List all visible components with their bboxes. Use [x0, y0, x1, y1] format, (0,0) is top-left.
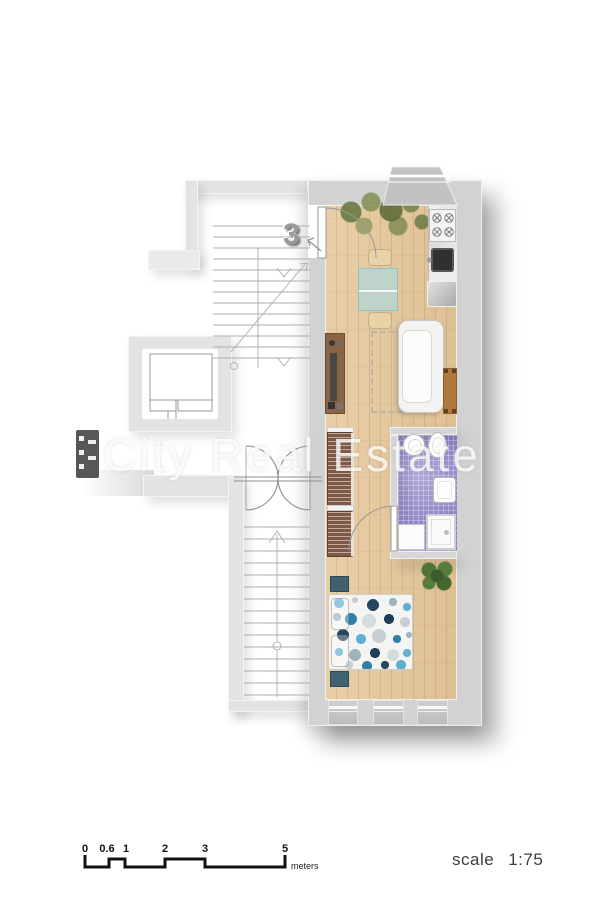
dining-table [358, 268, 398, 311]
lower-stairs [244, 527, 310, 697]
bedroom-plant [417, 556, 457, 596]
console-box [337, 403, 343, 409]
scale-bar-label-5: 5 [282, 843, 288, 855]
kitchen-cabinet [427, 281, 457, 307]
nightstand-top [330, 576, 349, 592]
scale-bar-label-3: 3 [202, 843, 208, 855]
scale-note-ratio: 1:75 [508, 850, 543, 870]
scale-bar-unit: meters [291, 861, 319, 871]
floor-plan-image: 3 City Real Estate 0 0.6 1 2 3 5 meters … [0, 0, 602, 900]
wardrobe-lower [327, 511, 354, 557]
sofa-seat [402, 330, 432, 403]
living-room-plant [336, 192, 428, 238]
lower-stairwell-left-wall [228, 477, 244, 712]
scale-note-label: scale [452, 850, 494, 870]
console-speaker-icon [329, 340, 335, 346]
pillow-bottom [331, 635, 349, 667]
pillow-top [331, 598, 349, 630]
bedroom-window-2 [373, 700, 404, 725]
scale-bar-label-0: 0 [82, 843, 88, 855]
scale-bar-label-0-6: 0.6 [99, 843, 114, 855]
stairwell-top-wall [185, 180, 308, 194]
elevator-shaft-interior [142, 349, 218, 419]
side-table [443, 368, 457, 414]
scale-bar [85, 855, 285, 867]
bed [328, 594, 413, 670]
console-equipment [330, 353, 337, 401]
bedroom-window-1 [328, 700, 358, 725]
stairwell-ledge [148, 250, 200, 270]
watermark: City Real Estate [103, 428, 481, 482]
console-speaker-icon [337, 342, 341, 346]
bedroom-window-3 [417, 700, 448, 725]
sofa [398, 320, 444, 413]
bathroom-cabinet [398, 524, 425, 550]
media-console [325, 333, 345, 414]
dining-chair-top [368, 249, 392, 266]
entrance-door-opening [308, 205, 325, 258]
dining-chair-bottom [368, 312, 392, 329]
nightstand-bottom [330, 671, 349, 687]
scale-note: scale 1:75 [452, 850, 543, 870]
shower-tray [426, 514, 456, 550]
apartment-number-label: 3 [283, 218, 300, 252]
window-sill [329, 706, 357, 709]
watermark-logo-icon [76, 430, 99, 478]
window-sill [418, 706, 447, 709]
scale-bar-label-2: 2 [162, 843, 168, 855]
window-sill [374, 706, 403, 709]
scale-bar-label-1: 1 [123, 843, 129, 855]
elevator-room [128, 336, 232, 432]
console-box [328, 402, 335, 409]
kitchen-stove [429, 209, 456, 242]
kitchen-sink [431, 248, 454, 272]
